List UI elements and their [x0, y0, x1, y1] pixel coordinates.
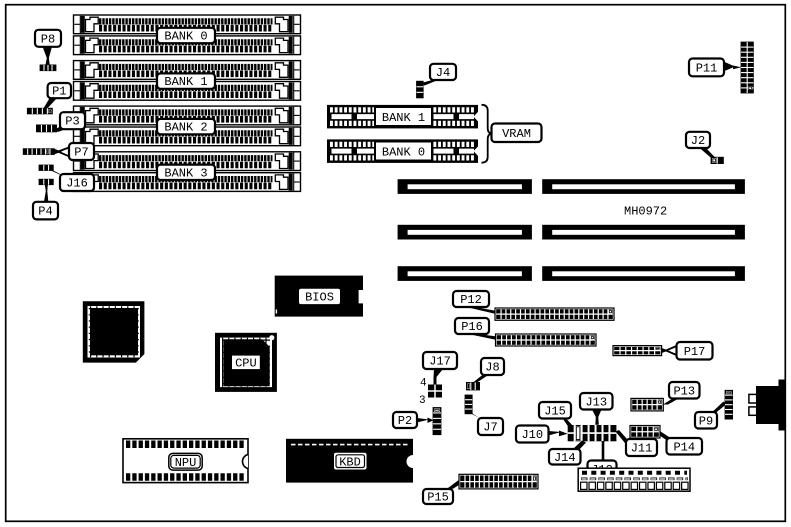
svg-text:BANK 1: BANK 1: [382, 111, 425, 125]
svg-text:VRAM: VRAM: [502, 127, 531, 141]
svg-text:P7: P7: [74, 146, 88, 160]
svg-text:P2: P2: [398, 414, 412, 428]
svg-text:BIOS: BIOS: [305, 291, 334, 305]
svg-text:J16: J16: [66, 177, 88, 191]
svg-text:P14: P14: [673, 440, 695, 454]
svg-text:P9: P9: [699, 414, 713, 428]
svg-text:J11: J11: [631, 442, 653, 456]
svg-text:P11: P11: [696, 61, 718, 75]
svg-text:3: 3: [419, 395, 426, 407]
svg-text:BANK 1: BANK 1: [164, 75, 207, 89]
svg-text:J14: J14: [554, 451, 576, 465]
svg-text:J7: J7: [483, 421, 497, 435]
svg-text:4: 4: [420, 378, 427, 390]
svg-text:BANK 3: BANK 3: [164, 166, 207, 180]
svg-text:BANK 0: BANK 0: [164, 30, 207, 44]
svg-text:BANK 0: BANK 0: [382, 145, 425, 159]
svg-text:P12: P12: [460, 293, 482, 307]
svg-text:P8: P8: [41, 32, 55, 46]
svg-text:J2: J2: [691, 134, 705, 148]
svg-text:P16: P16: [461, 320, 483, 334]
svg-text:NPU: NPU: [175, 456, 197, 470]
svg-text:J15: J15: [544, 404, 566, 418]
svg-text:J4: J4: [436, 66, 450, 80]
svg-text:P3: P3: [65, 115, 79, 129]
svg-text:BANK 2: BANK 2: [164, 121, 207, 135]
svg-text:J10: J10: [521, 428, 543, 442]
svg-text:KBD: KBD: [339, 455, 361, 469]
svg-text:P13: P13: [673, 384, 695, 398]
svg-text:MH0972: MH0972: [624, 205, 667, 219]
svg-text:CPU: CPU: [235, 356, 257, 370]
svg-text:P4: P4: [38, 205, 52, 219]
svg-text:J17: J17: [429, 355, 451, 369]
svg-text:P1: P1: [52, 85, 66, 99]
svg-text:P17: P17: [684, 345, 706, 359]
svg-text:J13: J13: [585, 395, 607, 409]
svg-text:J8: J8: [485, 361, 499, 375]
svg-text:P15: P15: [427, 491, 449, 505]
